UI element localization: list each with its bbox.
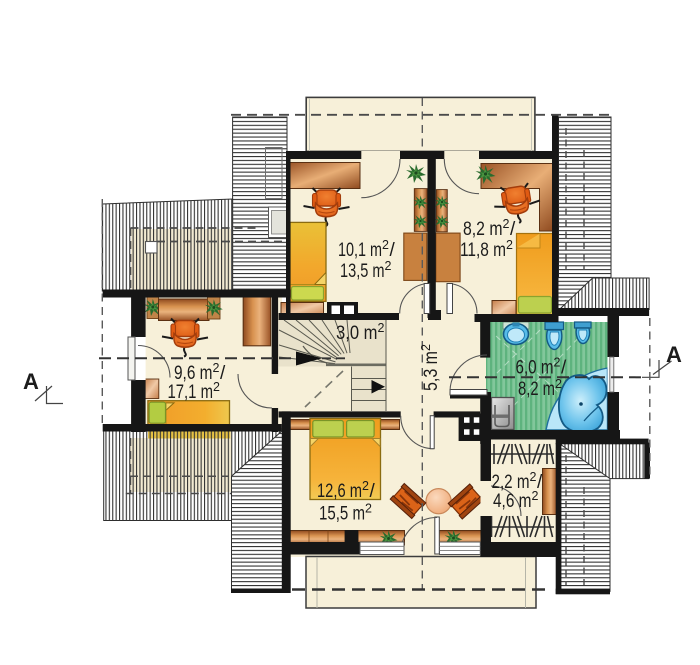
svg-text:5,3 m2: 5,3 m2 bbox=[419, 344, 442, 391]
svg-text:11,8 m2: 11,8 m2 bbox=[460, 238, 513, 261]
svg-text:A: A bbox=[666, 342, 682, 367]
svg-text:17,1 m2: 17,1 m2 bbox=[168, 380, 221, 403]
svg-text:3,0 m2: 3,0 m2 bbox=[336, 321, 385, 344]
svg-text:13,5 m2: 13,5 m2 bbox=[340, 259, 392, 282]
svg-text:15,5 m2: 15,5 m2 bbox=[319, 502, 372, 525]
svg-text:A: A bbox=[23, 369, 39, 394]
